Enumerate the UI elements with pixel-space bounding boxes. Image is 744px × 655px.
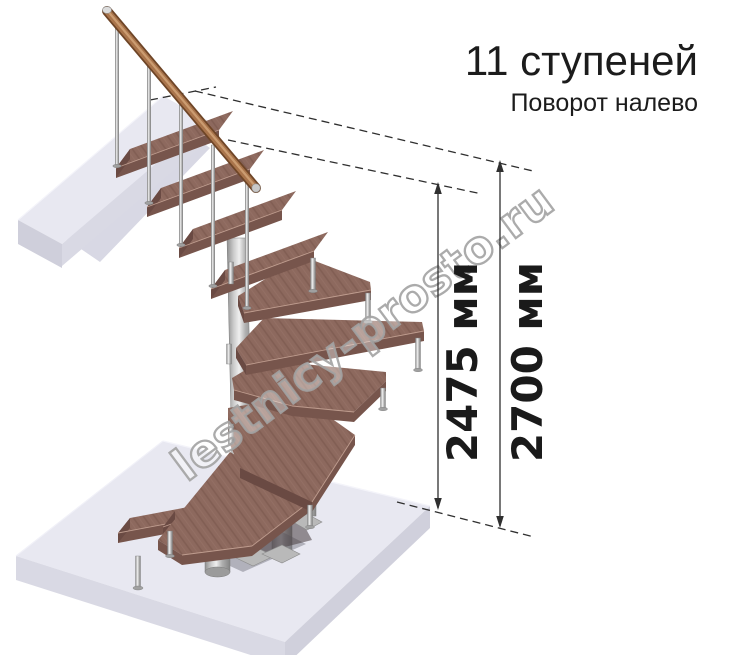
connector-post	[229, 262, 234, 284]
page-title: 11 ступеней	[465, 36, 698, 86]
staircase-diagram: lestnicy-prosto.ru 2475 мм 2700 мм 11 ст…	[0, 0, 744, 655]
connector-post	[227, 344, 232, 364]
connector-post	[414, 338, 423, 372]
handrail-end-cap	[252, 184, 260, 192]
extension-line-mid	[228, 140, 482, 194]
baluster	[209, 145, 217, 288]
page-subtitle: Поворот налево	[465, 88, 698, 118]
header: 11 ступеней Поворот налево	[465, 36, 698, 118]
dimension-label-2700: 2700 мм	[503, 262, 552, 462]
handrail-top-cap	[103, 7, 112, 14]
dimension-label-2475: 2475 мм	[438, 262, 487, 462]
